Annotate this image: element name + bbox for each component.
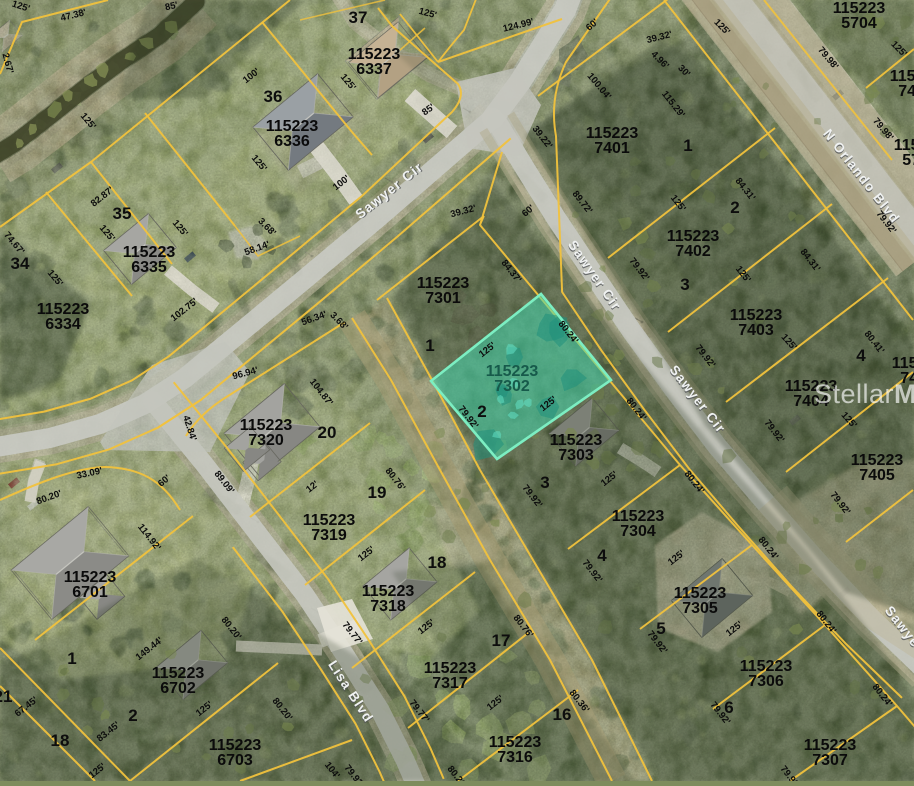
- svg-text:1: 1: [683, 136, 692, 155]
- svg-text:35: 35: [113, 204, 132, 223]
- svg-text:3: 3: [540, 473, 549, 492]
- svg-text:7405: 7405: [859, 467, 895, 484]
- svg-text:7303: 7303: [558, 447, 594, 464]
- svg-text:StellarMLS: StellarMLS: [814, 379, 914, 409]
- svg-text:7402: 7402: [675, 243, 711, 260]
- svg-text:7304: 7304: [620, 523, 656, 540]
- svg-text:5704: 5704: [841, 15, 877, 32]
- svg-text:6702: 6702: [160, 680, 196, 697]
- svg-text:36: 36: [264, 87, 283, 106]
- svg-text:3: 3: [680, 275, 689, 294]
- svg-text:7306: 7306: [748, 673, 784, 690]
- svg-text:7316: 7316: [497, 749, 533, 766]
- svg-text:6337: 6337: [356, 61, 392, 78]
- svg-text:7307: 7307: [812, 752, 848, 769]
- svg-text:17: 17: [492, 631, 511, 650]
- svg-text:7301: 7301: [425, 290, 461, 307]
- svg-text:18: 18: [428, 553, 447, 572]
- svg-text:7302: 7302: [494, 378, 530, 395]
- svg-text:2: 2: [730, 198, 739, 217]
- svg-text:18: 18: [51, 731, 70, 750]
- svg-text:16: 16: [553, 705, 572, 724]
- svg-text:1: 1: [67, 649, 76, 668]
- svg-text:19: 19: [368, 483, 387, 502]
- svg-text:7305: 7305: [682, 600, 718, 617]
- svg-text:7403: 7403: [738, 322, 774, 339]
- svg-text:20: 20: [318, 423, 337, 442]
- svg-text:34: 34: [11, 254, 30, 273]
- svg-text:5703: 5703: [902, 152, 914, 169]
- svg-text:2: 2: [128, 706, 137, 725]
- svg-text:6336: 6336: [274, 133, 310, 150]
- svg-text:7317: 7317: [432, 675, 468, 692]
- svg-text:37: 37: [349, 8, 368, 27]
- svg-text:7402: 7402: [898, 83, 914, 100]
- svg-text:7320: 7320: [248, 432, 284, 449]
- svg-text:6701: 6701: [72, 584, 108, 601]
- svg-text:6335: 6335: [131, 259, 167, 276]
- svg-text:7319: 7319: [311, 527, 347, 544]
- svg-text:1: 1: [425, 336, 434, 355]
- svg-text:6703: 6703: [217, 752, 253, 769]
- svg-text:6334: 6334: [45, 316, 81, 333]
- svg-text:7318: 7318: [370, 598, 406, 615]
- svg-text:4: 4: [597, 546, 607, 565]
- svg-text:4: 4: [856, 346, 866, 365]
- svg-text:2: 2: [477, 402, 486, 421]
- svg-text:7401: 7401: [594, 140, 630, 157]
- svg-text:21: 21: [0, 687, 12, 706]
